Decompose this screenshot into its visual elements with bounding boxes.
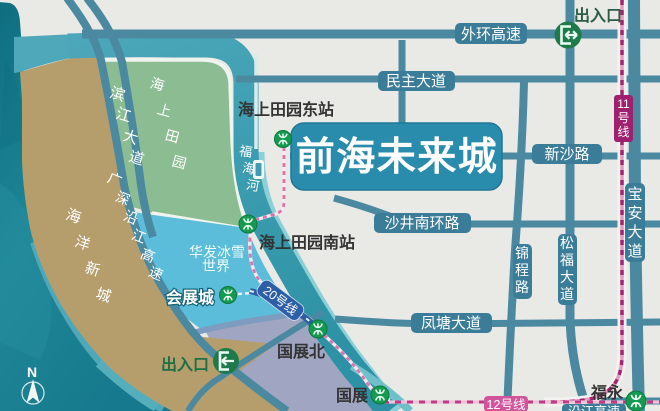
svg-text:11号线: 11号线: [617, 97, 630, 139]
svg-text:会展城: 会展城: [166, 288, 214, 307]
svg-text:河: 河: [245, 177, 260, 194]
svg-text:锦程路: 锦程路: [515, 245, 529, 295]
svg-text:国展北: 国展北: [277, 343, 325, 361]
svg-text:海上田园东站: 海上田园东站: [238, 100, 334, 119]
svg-text:海: 海: [241, 160, 256, 177]
svg-text:外环高速: 外环高速: [461, 26, 521, 43]
svg-text:沙井南环路: 沙井南环路: [384, 215, 459, 232]
svg-text:世界: 世界: [202, 258, 230, 274]
svg-text:出入口: 出入口: [161, 355, 209, 374]
svg-text:凤塘大道: 凤塘大道: [421, 315, 481, 332]
svg-text:前海未来城: 前海未来城: [296, 136, 499, 179]
svg-text:沿江高速: 沿江高速: [568, 404, 620, 411]
svg-text:福永: 福永: [590, 383, 623, 402]
svg-text:国展: 国展: [336, 387, 369, 405]
svg-text:出入口: 出入口: [574, 6, 622, 25]
svg-text:福: 福: [238, 143, 253, 160]
svg-text:松福大道: 松福大道: [560, 235, 574, 302]
svg-text:12号线: 12号线: [487, 398, 526, 411]
svg-text:民主大道: 民主大道: [386, 73, 446, 90]
svg-text:海上田园南站: 海上田园南站: [259, 233, 355, 252]
svg-text:新沙路: 新沙路: [544, 146, 589, 163]
svg-text:N: N: [27, 364, 37, 380]
